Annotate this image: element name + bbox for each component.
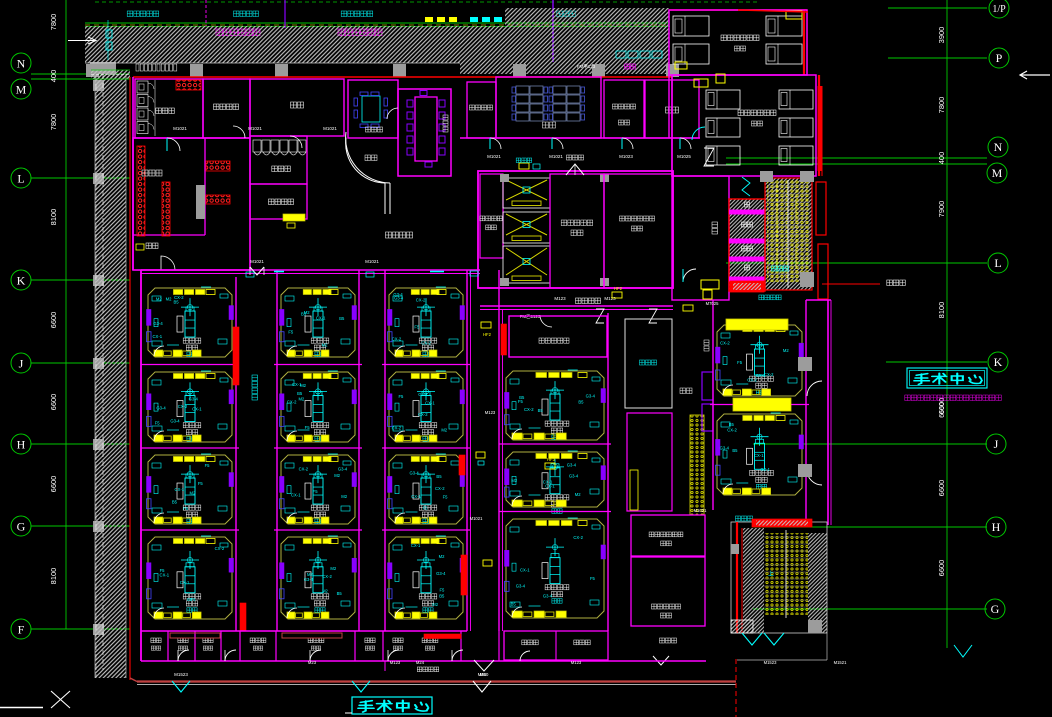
svg-text:CX-2: CX-2 [215, 546, 225, 551]
svg-text:F5: F5 [423, 505, 429, 510]
svg-text:G3-4: G3-4 [586, 394, 596, 399]
svg-text:F5: F5 [288, 329, 294, 334]
svg-text:B5: B5 [538, 408, 544, 413]
svg-text:B5: B5 [578, 399, 584, 404]
svg-text:CX-1: CX-1 [411, 494, 421, 499]
svg-text:6600: 6600 [939, 402, 946, 418]
svg-text:M2: M2 [298, 396, 304, 401]
svg-text:F5: F5 [191, 597, 197, 602]
svg-text:CX-2: CX-2 [727, 428, 737, 433]
svg-text:G3-4: G3-4 [153, 321, 163, 326]
svg-text:M7025: M7025 [706, 301, 719, 306]
svg-text:H: H [992, 520, 1001, 534]
svg-text:1/P: 1/P [992, 4, 1006, 15]
svg-text:M1521: M1521 [834, 660, 847, 665]
svg-text:G3-4: G3-4 [543, 594, 553, 599]
svg-text:G3-4: G3-4 [516, 584, 526, 589]
svg-text:CX-2: CX-2 [435, 486, 445, 491]
svg-text:M1021: M1021 [487, 154, 501, 159]
svg-text:CX-1: CX-1 [180, 580, 190, 585]
svg-text:6600: 6600 [49, 394, 58, 411]
svg-text:M2: M2 [783, 348, 789, 353]
svg-text:M1021: M1021 [248, 126, 262, 131]
svg-text:CX-2: CX-2 [764, 372, 774, 377]
svg-text:G3-4: G3-4 [567, 462, 577, 467]
svg-text:400: 400 [49, 70, 58, 83]
svg-text:B5: B5 [339, 316, 345, 321]
svg-text:H: H [17, 438, 26, 452]
svg-text:B5: B5 [337, 591, 343, 596]
svg-text:M2: M2 [441, 428, 447, 433]
svg-text:J: J [19, 357, 24, 371]
svg-text:B5: B5 [436, 474, 442, 479]
svg-text:G3-4: G3-4 [304, 577, 314, 582]
svg-text:G3-4: G3-4 [393, 292, 403, 297]
svg-text:CX-2: CX-2 [174, 295, 184, 300]
svg-text:F5: F5 [305, 425, 311, 430]
svg-text:P: P [996, 51, 1003, 65]
svg-text:M1523: M1523 [174, 672, 188, 677]
svg-text:M1021: M1021 [323, 126, 337, 131]
svg-text:CX-2: CX-2 [392, 337, 402, 342]
svg-text:M1021: M1021 [470, 516, 483, 521]
svg-text:上: 上 [768, 570, 774, 578]
svg-text:CX-2: CX-2 [322, 574, 332, 579]
svg-text:6600: 6600 [937, 480, 946, 497]
svg-text:M1523: M1523 [764, 660, 777, 665]
svg-text:CX-1: CX-1 [153, 334, 163, 339]
svg-text:CX-1: CX-1 [160, 572, 170, 577]
svg-text:M1021: M1021 [549, 154, 563, 159]
svg-text:M1023: M1023 [619, 154, 633, 159]
svg-text:CX-1: CX-1 [411, 543, 421, 548]
svg-text:M1025: M1025 [677, 154, 691, 159]
svg-text:7800: 7800 [49, 14, 58, 31]
svg-text:F5: F5 [439, 587, 445, 592]
svg-text:L: L [17, 172, 24, 186]
svg-text:B5: B5 [729, 422, 735, 427]
svg-text:M2: M2 [575, 492, 581, 497]
svg-text:F5: F5 [198, 481, 204, 486]
svg-text:CX-2: CX-2 [392, 425, 402, 430]
svg-text:F5: F5 [414, 324, 420, 329]
svg-text:G3-4: G3-4 [338, 467, 348, 472]
svg-text:M1021: M1021 [694, 508, 707, 513]
svg-text:F5: F5 [155, 421, 161, 426]
svg-text:CX-1: CX-1 [175, 487, 185, 492]
svg-text:M2: M2 [511, 478, 517, 483]
svg-text:B5: B5 [511, 602, 517, 607]
svg-text:M2: M2 [300, 383, 306, 388]
svg-text:M123: M123 [604, 296, 616, 301]
svg-text:M1021: M1021 [250, 259, 264, 264]
svg-text:CX-1: CX-1 [754, 453, 764, 458]
svg-text:G3-4: G3-4 [409, 470, 419, 475]
svg-text:G: G [991, 602, 1000, 616]
svg-text:6600: 6600 [49, 476, 58, 493]
svg-text:M2: M2 [330, 566, 336, 571]
svg-text:CX-2: CX-2 [421, 340, 431, 345]
svg-text:CX-1: CX-1 [545, 484, 555, 489]
svg-text:K: K [17, 274, 26, 288]
svg-text:M1021: M1021 [173, 126, 187, 131]
svg-text:G3-4: G3-4 [156, 406, 166, 411]
svg-text:M123: M123 [554, 296, 566, 301]
svg-text:L: L [994, 256, 1001, 270]
svg-text:B5: B5 [519, 395, 525, 400]
svg-text:CX-2: CX-2 [524, 407, 534, 412]
svg-text:B5: B5 [297, 391, 303, 396]
svg-text:J: J [994, 437, 999, 451]
svg-text:B5: B5 [301, 312, 307, 317]
svg-text:K: K [994, 355, 1003, 369]
svg-text:F5: F5 [313, 489, 319, 494]
svg-text:HF2: HF2 [483, 332, 492, 337]
svg-text:M2: M2 [322, 588, 328, 593]
svg-text:B5: B5 [172, 500, 178, 505]
svg-text:CX-2: CX-2 [418, 412, 428, 417]
svg-text:N: N [994, 140, 1003, 154]
svg-text:M123: M123 [485, 410, 496, 415]
svg-text:6600: 6600 [49, 312, 58, 329]
svg-text:8100: 8100 [49, 568, 58, 585]
svg-text:CX-2: CX-2 [416, 298, 426, 303]
svg-text:F: F [18, 623, 25, 637]
svg-text:CX-2: CX-2 [720, 340, 730, 345]
svg-text:CX-1: CX-1 [316, 315, 326, 320]
svg-text:M2: M2 [334, 473, 340, 478]
svg-text:G3-4: G3-4 [418, 392, 428, 397]
svg-text:CX-2: CX-2 [573, 535, 583, 540]
svg-text:M2: M2 [307, 572, 313, 577]
svg-text:M23: M23 [308, 660, 317, 665]
svg-text:M50: M50 [478, 672, 487, 677]
svg-text:M123: M123 [390, 660, 401, 665]
svg-text:M: M [16, 83, 27, 97]
svg-text:HF2: HF2 [614, 286, 623, 291]
svg-text:B5: B5 [732, 448, 738, 453]
svg-text:B5: B5 [439, 593, 445, 598]
svg-text:CX-2: CX-2 [299, 466, 309, 471]
svg-text:CX-1: CX-1 [520, 567, 530, 572]
svg-text:7800: 7800 [937, 97, 946, 114]
svg-text:CX-2: CX-2 [287, 399, 297, 404]
svg-text:M2: M2 [322, 343, 328, 348]
svg-text:8100: 8100 [937, 302, 946, 319]
svg-text:CX-1: CX-1 [291, 493, 301, 498]
svg-text:M1021: M1021 [365, 259, 379, 264]
svg-text:400: 400 [937, 152, 946, 165]
svg-text:M2: M2 [189, 491, 195, 496]
svg-text:M2: M2 [166, 296, 172, 301]
svg-text:HF3: HF3 [547, 457, 556, 462]
svg-text:CX-2: CX-2 [747, 378, 757, 383]
svg-text:F5: F5 [443, 495, 449, 500]
svg-text:CX-1: CX-1 [192, 406, 202, 411]
svg-text:G3-4: G3-4 [760, 467, 770, 472]
svg-text:G3-4: G3-4 [569, 474, 579, 479]
svg-text:M123: M123 [571, 660, 582, 665]
svg-text:F5: F5 [737, 360, 743, 365]
svg-text:G: G [17, 520, 26, 534]
svg-text:G3-4: G3-4 [170, 418, 180, 423]
svg-text:M2: M2 [432, 602, 438, 607]
svg-text:M2: M2 [439, 554, 445, 559]
svg-text:G3-4: G3-4 [189, 397, 199, 402]
svg-text:B5: B5 [173, 300, 179, 305]
svg-text:G3-4: G3-4 [436, 571, 446, 576]
svg-text:M24: M24 [416, 660, 425, 665]
svg-text:M2: M2 [341, 494, 347, 499]
svg-text:M2: M2 [156, 297, 162, 302]
svg-text:CX-2: CX-2 [178, 404, 188, 409]
svg-text:F5: F5 [205, 463, 211, 468]
svg-text:F5: F5 [183, 506, 189, 511]
svg-text:8100: 8100 [49, 209, 58, 226]
svg-text:M: M [992, 166, 1003, 180]
svg-text:6600: 6600 [937, 560, 946, 577]
svg-text:3900: 3900 [937, 27, 946, 44]
svg-text:F5: F5 [590, 576, 596, 581]
svg-text:CX-1: CX-1 [425, 401, 435, 406]
svg-text:N: N [17, 57, 26, 71]
svg-text:F5: F5 [398, 394, 404, 399]
svg-text:7800: 7800 [49, 114, 58, 131]
svg-text:G3-4: G3-4 [720, 446, 730, 451]
svg-text:7900: 7900 [937, 201, 946, 218]
